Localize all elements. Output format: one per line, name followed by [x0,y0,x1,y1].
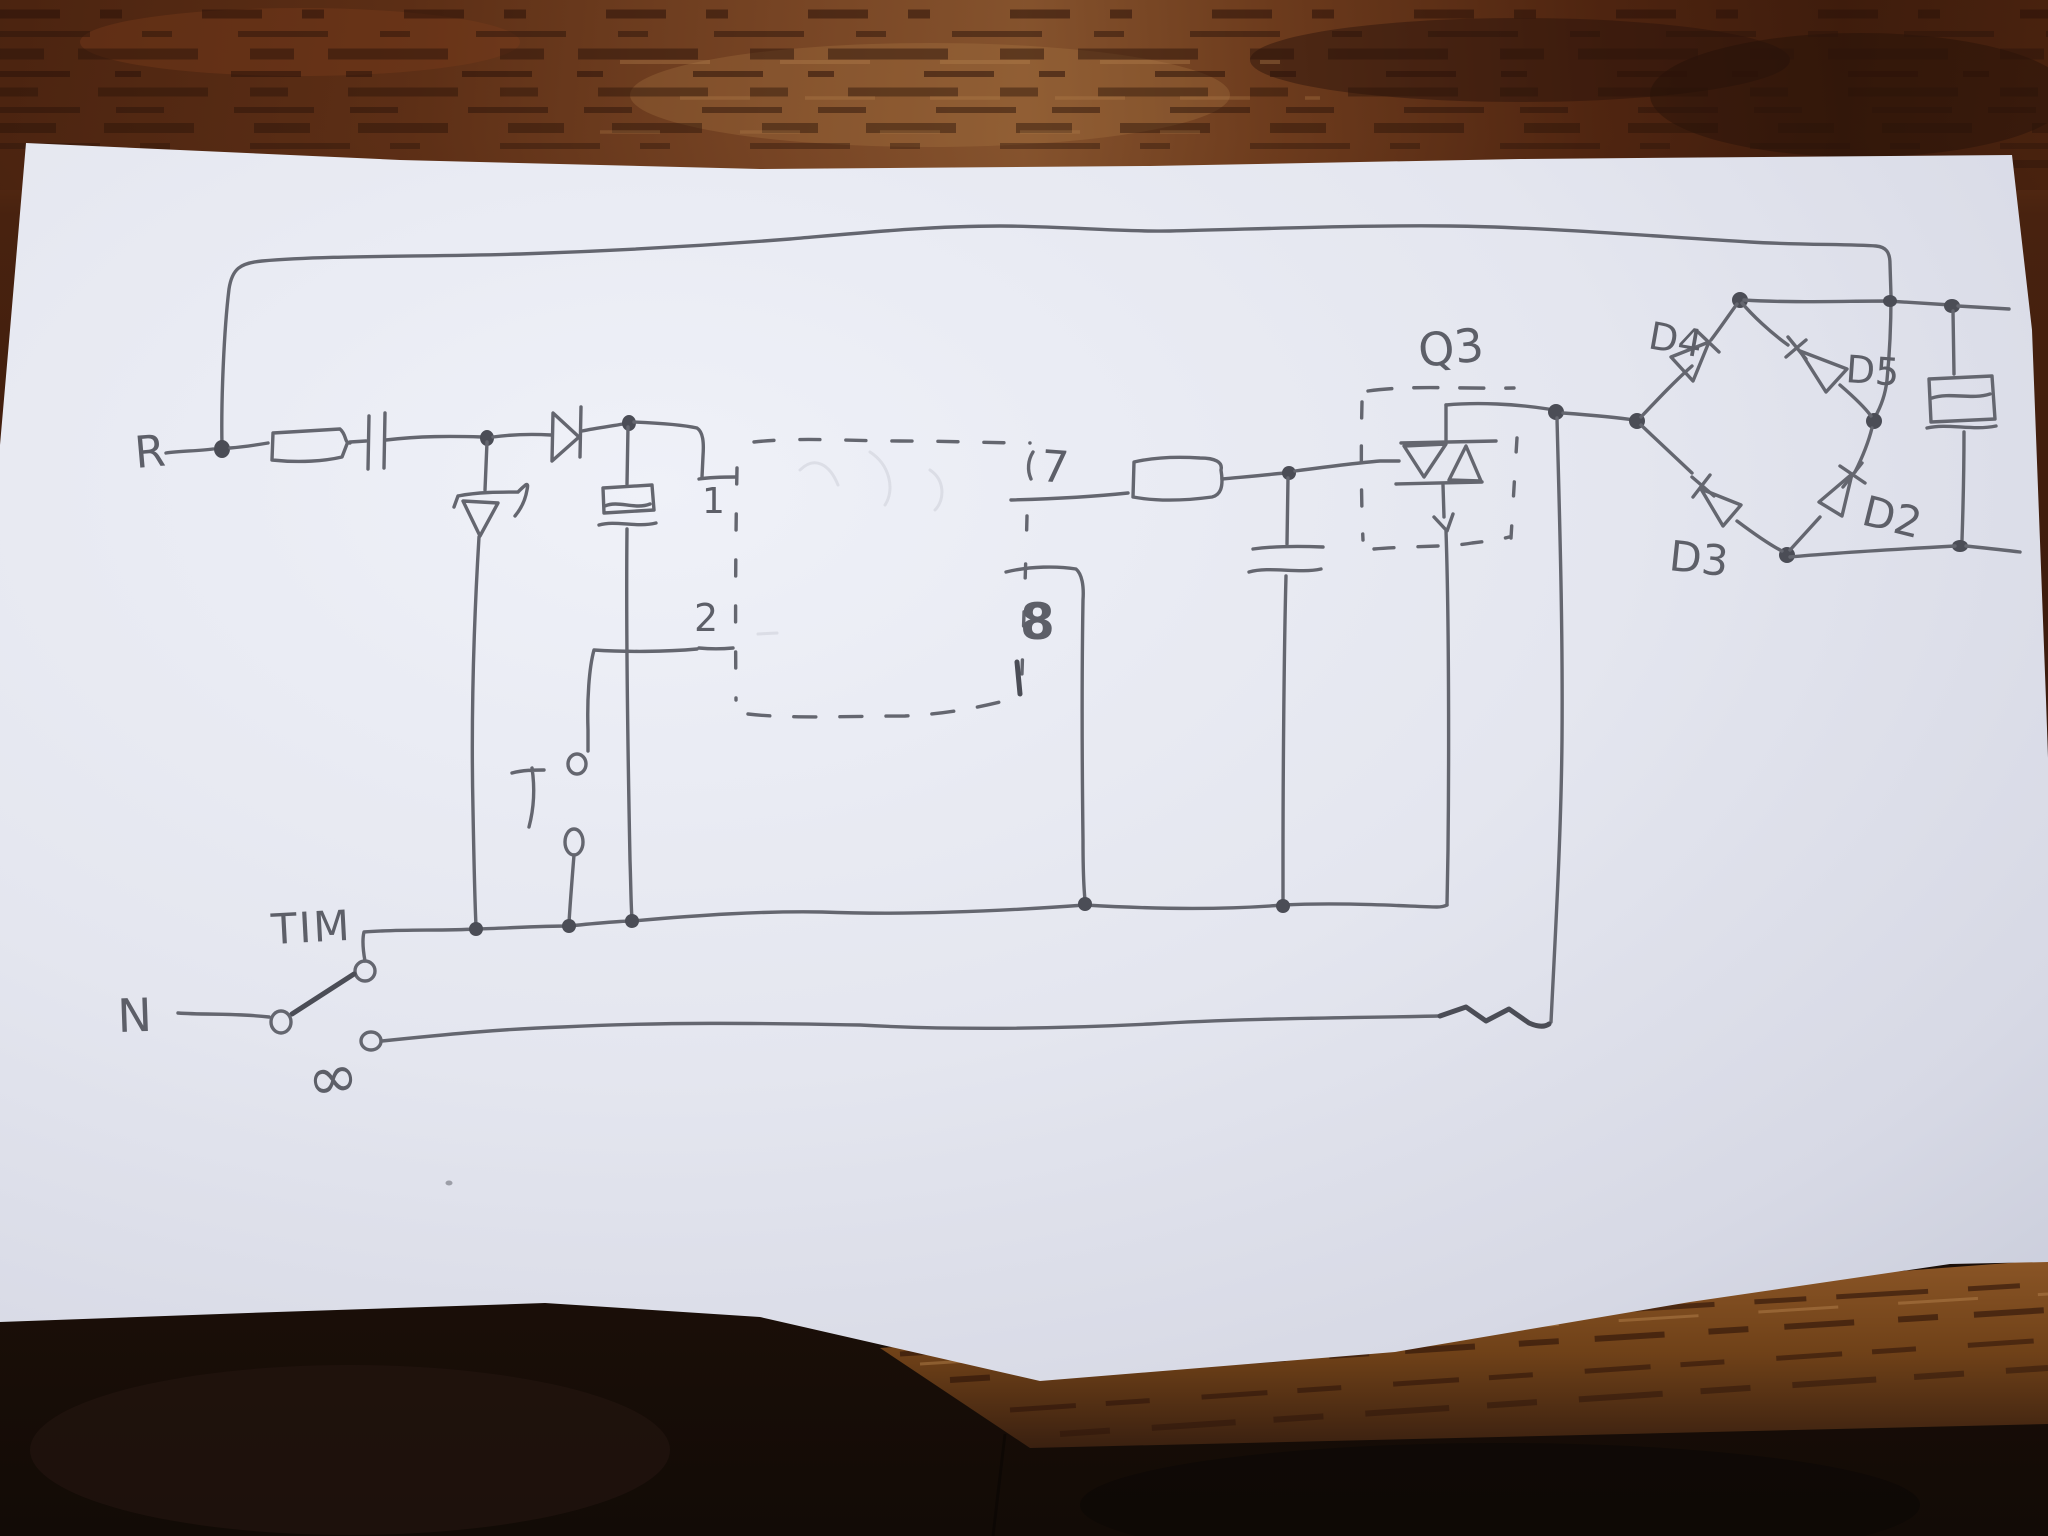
pencil-speck [446,1181,453,1186]
wire [1287,478,1288,544]
junction-dot [1276,899,1290,913]
wire [627,427,628,484]
junction-dot [562,919,576,933]
wire [1953,311,1954,374]
wire [485,442,487,490]
wire [1962,432,1964,540]
label-line: R [133,425,168,478]
label-d5: D5 [1844,347,1900,395]
junction-dot [469,922,483,936]
junction-dot [1883,295,1897,307]
ic-box-right-bold-dash [1017,662,1020,694]
junction-dot [1078,897,1092,911]
ghost-mark [758,633,777,634]
wood-patch [30,1365,670,1535]
junction-dot [214,440,230,458]
label-d3: D3 [1667,531,1731,586]
capacitor-plate [368,416,369,469]
photo-of-hand-drawn-circuit: R 1 2 7 8 Q3 D4 D5 D3 D2 TIM N ∞ [0,0,2048,1536]
label-timer: TIM [269,901,353,954]
label-ic-pin7: 7 [1039,441,1070,494]
capacitor-plate [599,523,656,525]
label-triac: Q3 [1416,317,1487,378]
paper-surface [0,143,2048,1381]
triac-top-bar [1401,441,1496,443]
capacitor-plate [1249,569,1321,572]
bridge-right-vertex-dot [1866,413,1882,429]
pin2-stub [699,648,733,649]
label-ic-pin8: 8 [1020,593,1055,651]
triac-bottom-bar [1396,482,1482,484]
wire [350,441,366,442]
pin1-stub [699,477,736,479]
label-ic-pin2: 2 [694,596,718,640]
schematic-photo-canvas: R 1 2 7 8 Q3 D4 D5 D3 D2 TIM N ∞ [0,0,2048,1536]
label-always-on: ∞ [302,1037,363,1116]
capacitor-plate [1927,426,1996,428]
label-d4: D4 [1645,314,1705,367]
junction-dot [625,914,639,928]
label-ic-pin1: 1 [702,481,725,522]
label-neutral: N [116,988,152,1043]
paper-sheet [0,143,2048,1381]
